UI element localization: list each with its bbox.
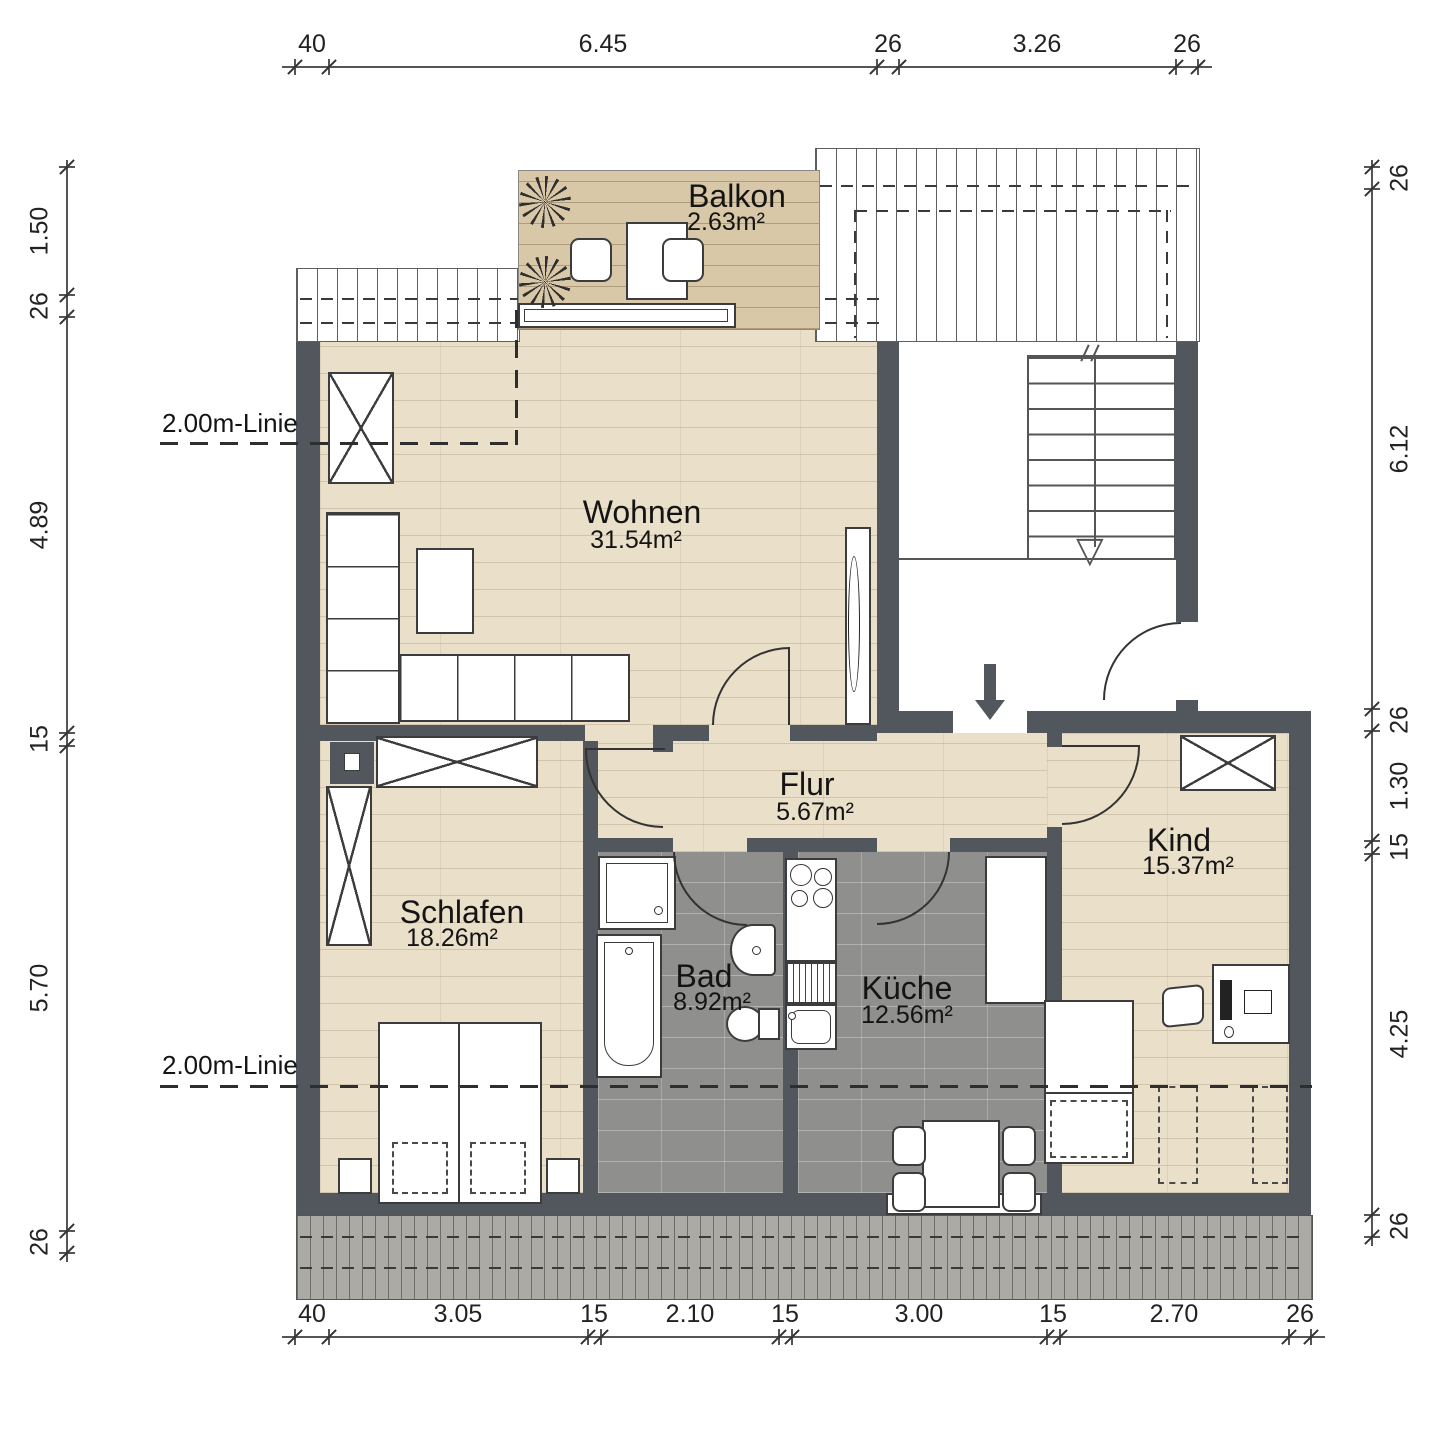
entry-arrow-icon [984, 664, 996, 700]
dim-label: 26 [1386, 706, 1415, 734]
dim-label: 26 [1173, 30, 1201, 59]
dim-label: 26 [26, 292, 55, 320]
dim-tick [1310, 1329, 1312, 1345]
dim-tick [1197, 59, 1199, 75]
stair-direction-icon: ▽ [1076, 532, 1104, 568]
mouse-icon [1224, 1026, 1234, 1038]
single-bed-lower [1050, 1100, 1128, 1158]
single-bed-blanket-line [1046, 1092, 1132, 1094]
roof-hatch-top-right [815, 148, 1200, 342]
dim-label: 26 [26, 1228, 55, 1256]
dim-tick [1175, 59, 1177, 75]
height-line-upper-label: 2.00m-Linie [162, 408, 298, 439]
dim-label: 26 [1386, 1212, 1415, 1240]
balcony-window-inner [524, 309, 728, 322]
door-leaf-schlafen [585, 748, 665, 750]
room-area-balkon: 2.63m² [687, 208, 765, 237]
terrace-roof-dash-1 [300, 1236, 1307, 1238]
bathtub-basin [604, 942, 654, 1066]
fridge-cabinet [985, 856, 1047, 1004]
wall-kind-west-upper [1047, 733, 1062, 747]
dim-tick [1059, 1329, 1061, 1345]
dim-label: 26 [1386, 164, 1415, 192]
roof-edge-dash-3 [820, 185, 1192, 187]
terrace-roof-strip [296, 1215, 1313, 1300]
dim-tick [1364, 730, 1380, 732]
dim-label: 26 [874, 30, 902, 59]
bed-pillow-right [470, 1142, 526, 1194]
washbasin-drain [752, 946, 761, 955]
wardrobe-kind [1180, 735, 1276, 791]
wall-stairwell-left [877, 318, 899, 733]
sofa-vertical [326, 512, 400, 724]
dim-tick [59, 316, 75, 318]
dim-tick [587, 1329, 589, 1345]
dim-tick [876, 59, 878, 75]
wall-south-band-east [1027, 711, 1311, 733]
dining-chair-2 [892, 1172, 926, 1212]
wall-bottom-east [1042, 1193, 1311, 1215]
dim-label: 15 [1039, 1300, 1067, 1329]
dim-tick [328, 59, 330, 75]
bathtub-tap [625, 947, 633, 955]
stove-burner-2 [814, 868, 832, 886]
plant-icon-1 [519, 176, 571, 228]
monitor-icon [1244, 990, 1272, 1014]
dim-tick [791, 1329, 793, 1345]
dim-label: 5.70 [26, 964, 55, 1013]
stove-burner-1 [790, 864, 812, 886]
tv-icon [848, 556, 860, 692]
dim-label: 40 [298, 30, 326, 59]
stove-burner-3 [791, 890, 808, 907]
wall-stairwell-right-upper [1176, 318, 1198, 622]
dim-label: 15 [771, 1300, 799, 1329]
wall-kueche-top-west [783, 838, 877, 852]
dim-label: 2.10 [666, 1300, 715, 1329]
door-leaf-wohnen [788, 647, 790, 725]
closet-outline-1 [1158, 1086, 1198, 1184]
entry-arrow-head [975, 700, 1005, 720]
dim-label: 4.89 [26, 501, 55, 550]
floor-plan: ▽ [0, 0, 1434, 1440]
skylight-box [328, 372, 394, 484]
dim-tick [1364, 188, 1380, 190]
dim-tick [59, 1252, 75, 1254]
dim-tick [1364, 853, 1380, 855]
roof-edge-dash-4 [855, 210, 1171, 212]
dish-rack [785, 962, 837, 1004]
dim-tick [898, 59, 900, 75]
dim-tick [778, 1329, 780, 1345]
coffee-table [416, 548, 474, 634]
balcony-chair-right [662, 238, 704, 282]
dim-tick [1364, 1236, 1380, 1238]
dining-chair-3 [1002, 1126, 1036, 1166]
dim-label: 3.00 [895, 1300, 944, 1329]
double-bed-divider [458, 1024, 460, 1202]
dim-tick [59, 732, 75, 734]
kitchen-sink-basin [791, 1010, 831, 1044]
dining-chair-1 [892, 1126, 926, 1166]
shower-drain [654, 906, 663, 915]
room-area-bad: 8.92m² [673, 988, 751, 1017]
dim-label: 6.12 [1386, 425, 1415, 474]
kitchen-tap [788, 1012, 796, 1020]
stairs-landing-line [899, 558, 1176, 560]
dining-table [922, 1120, 1000, 1208]
roof-edge-dash-6 [1166, 210, 1168, 338]
dim-tick [59, 294, 75, 296]
keyboard-icon [1220, 980, 1232, 1020]
dim-tick [1364, 1214, 1380, 1216]
room-area-flur: 5.67m² [776, 798, 854, 827]
dim-tick [59, 1230, 75, 1232]
toilet-tank [758, 1008, 780, 1040]
wall-south-band-west [899, 711, 953, 733]
height-line-upper [160, 442, 518, 445]
height-line-lower [160, 1085, 1312, 1088]
dim-tick [1364, 166, 1380, 168]
dim-tick [1364, 840, 1380, 842]
dim-tick [1288, 1329, 1290, 1345]
closet-outline-2 [1252, 1086, 1288, 1184]
terrace-roof-dash-2 [300, 1267, 1307, 1269]
dim-label: 15 [1386, 833, 1415, 861]
wall-kueche-top-east [950, 838, 1047, 852]
plant-icon-2 [519, 256, 571, 308]
bed-pillow-left [392, 1142, 448, 1194]
wall-exterior-east [1289, 733, 1311, 1215]
dim-label: 3.26 [1013, 30, 1062, 59]
dim-tick [600, 1329, 602, 1345]
dim-label: 15 [580, 1300, 608, 1329]
dim-label: 4.25 [1386, 1010, 1415, 1059]
wall-mid-center [653, 725, 709, 741]
roof-edge-dash-5 [854, 210, 856, 338]
room-area-schlafen: 18.26m² [406, 924, 498, 953]
wall-exterior-left [296, 317, 320, 1215]
dim-label: 1.50 [26, 207, 55, 256]
balcony-chair-left [570, 238, 612, 282]
dim-label: 3.05 [434, 1300, 483, 1329]
dim-tick [294, 1329, 296, 1345]
wall-bad-top-west [598, 838, 673, 852]
dim-label: 26 [1286, 1300, 1314, 1329]
dim-tick [328, 1329, 330, 1345]
wall-mid-east [790, 725, 877, 741]
roof-hatch-top-left [296, 268, 520, 342]
dim-label: 6.45 [579, 30, 628, 59]
dim-label: 2.70 [1150, 1300, 1199, 1329]
dim-tick [59, 166, 75, 168]
stairs-center-line [1094, 355, 1096, 547]
room-area-kind: 15.37m² [1142, 852, 1234, 881]
desk-chair [1162, 984, 1204, 1028]
dim-tick [1364, 708, 1380, 710]
dim-tick [1046, 1329, 1048, 1345]
room-area-kueche: 12.56m² [861, 1001, 953, 1030]
sofa-horizontal [398, 654, 630, 722]
dim-tick [294, 59, 296, 75]
stove-burner-4 [813, 888, 833, 908]
dining-chair-4 [1002, 1172, 1036, 1212]
wardrobe-schlafen-top [376, 736, 538, 788]
height-line-lower-label: 2.00m-Linie [162, 1050, 298, 1081]
dim-label: 15 [26, 725, 55, 753]
chimney-flue [344, 753, 360, 771]
dim-label: 40 [298, 1300, 326, 1329]
wardrobe-schlafen-left [326, 786, 372, 946]
dim-label: 1.30 [1386, 762, 1415, 811]
nightstand-left [338, 1158, 372, 1194]
door-leaf-kind [1062, 745, 1140, 747]
room-area-wohnen: 31.54m² [590, 526, 682, 555]
nightstand-right [546, 1158, 580, 1194]
dim-tick [59, 745, 75, 747]
wall-bad-top-east [747, 838, 783, 852]
height-line-upper-vertical [515, 310, 518, 445]
